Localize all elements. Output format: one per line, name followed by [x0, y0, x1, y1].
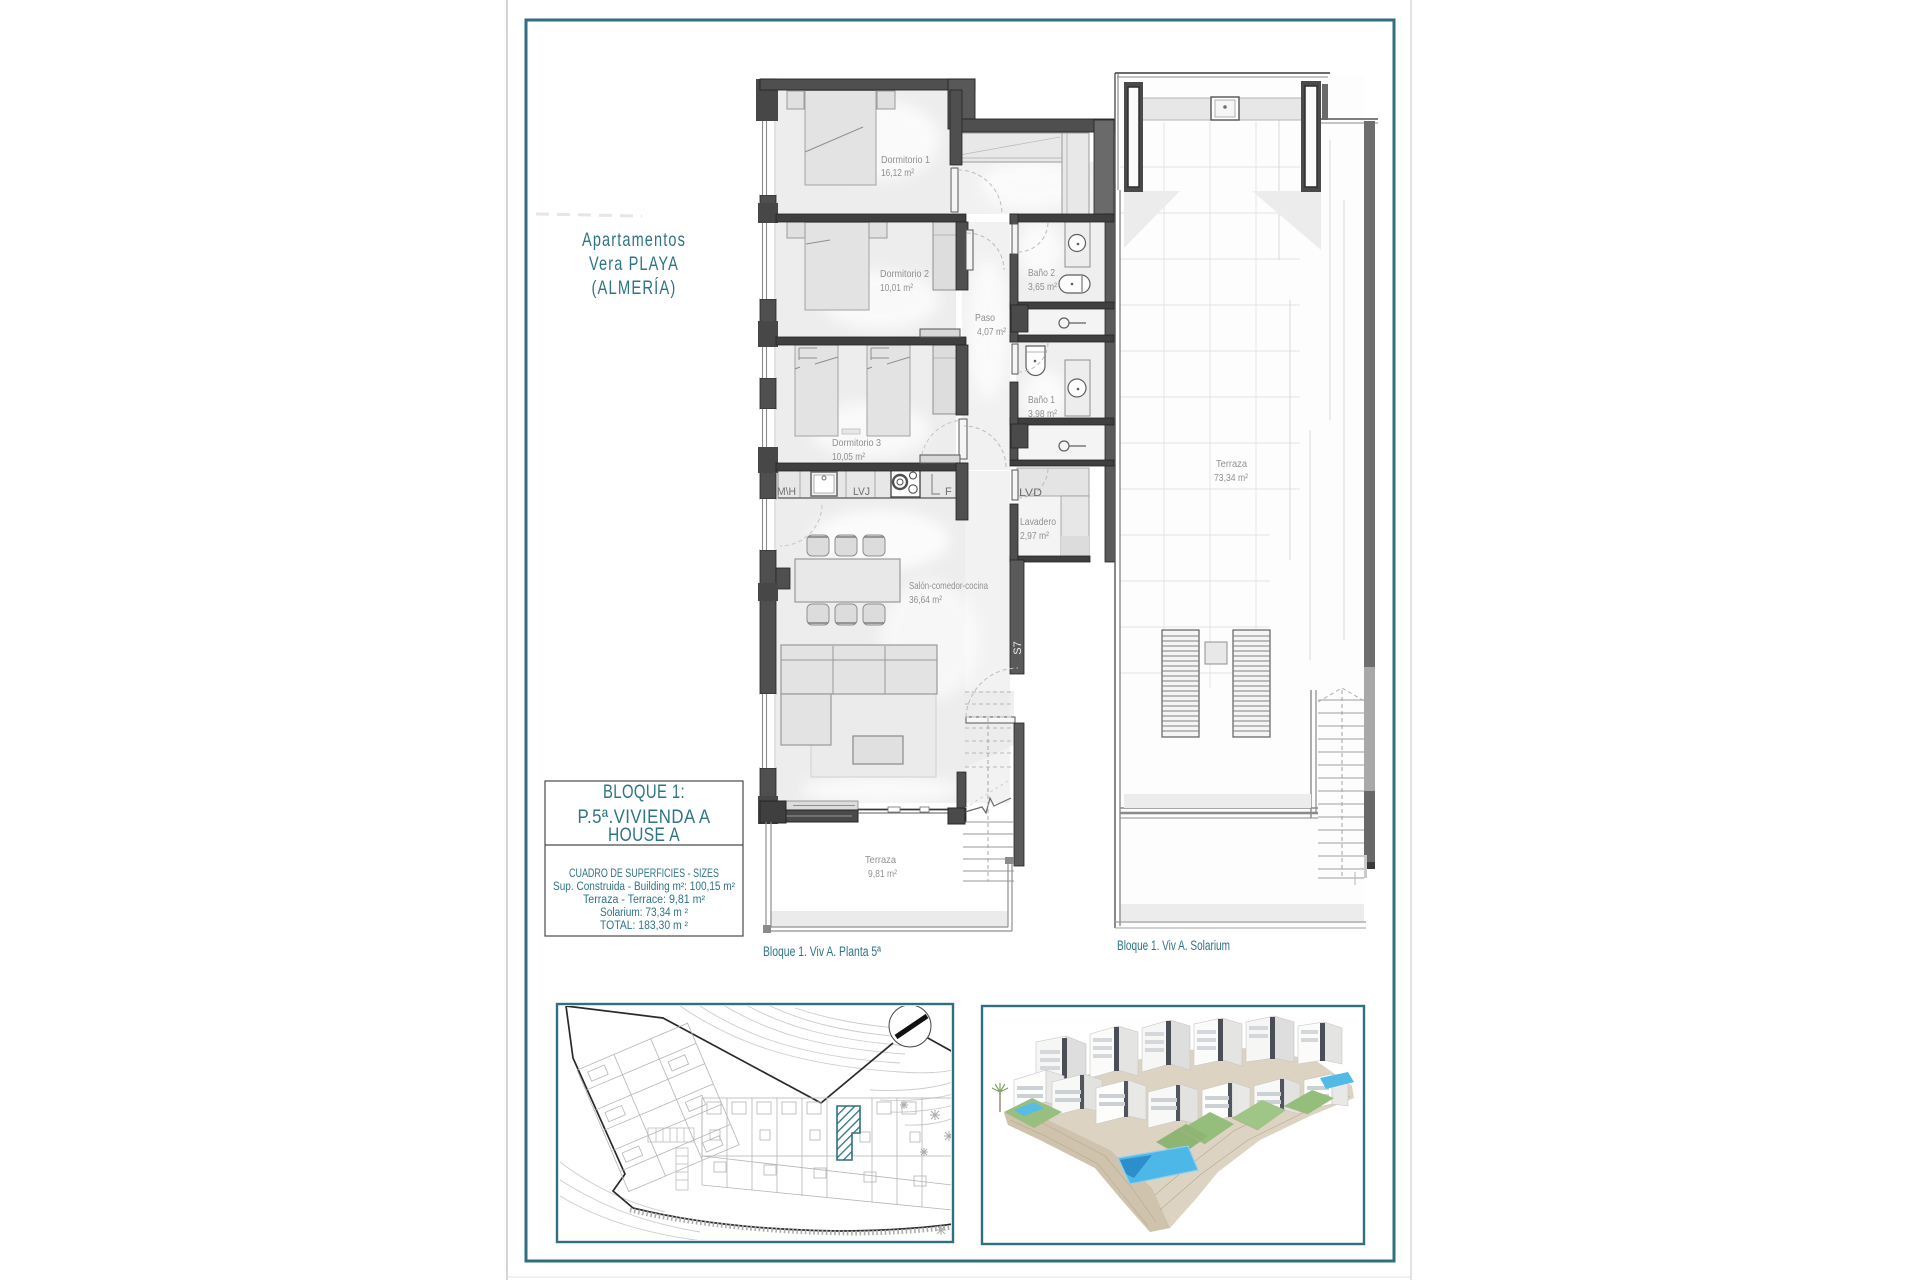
svg-text:10,01 m²: 10,01 m² — [880, 282, 913, 294]
svg-text:Solarium: 73,34 m ²: Solarium: 73,34 m ² — [600, 907, 688, 919]
svg-text:10,05 m²: 10,05 m² — [832, 451, 865, 463]
svg-text:CUADRO DE SUPERFICIES - SIZES: CUADRO DE SUPERFICIES - SIZES — [569, 868, 719, 880]
svg-text:Baño 2: Baño 2 — [1028, 267, 1055, 279]
svg-text:Dormitorio 2: Dormitorio 2 — [880, 268, 929, 280]
svg-text:2,97 m²: 2,97 m² — [1020, 530, 1049, 542]
svg-text:Terraza: Terraza — [865, 854, 896, 866]
svg-text:Vera PLAYA: Vera PLAYA — [589, 253, 679, 275]
svg-text:Baño 1: Baño 1 — [1028, 394, 1055, 406]
svg-text:F: F — [945, 486, 952, 498]
svg-text:Apartamentos: Apartamentos — [582, 229, 686, 251]
svg-text:Paso: Paso — [975, 312, 995, 324]
svg-text:16,12 m²: 16,12 m² — [881, 167, 914, 179]
svg-text:9,81 m²: 9,81 m² — [868, 868, 897, 880]
svg-text:Sup. Construida - Building m²: Sup. Construida - Building m²: 100,15 m² — [553, 881, 735, 893]
svg-text:Dormitorio 1: Dormitorio 1 — [881, 154, 930, 166]
svg-text:HOUSE A: HOUSE A — [608, 825, 680, 846]
svg-text:Terraza: Terraza — [1216, 458, 1247, 470]
svg-text:Salón-comedor-cocina: Salón-comedor-cocina — [909, 580, 988, 592]
svg-text:LVD: LVD — [1019, 487, 1042, 499]
svg-text:Dormitorio 3: Dormitorio 3 — [832, 437, 881, 449]
svg-text:3,98 m²: 3,98 m² — [1028, 408, 1057, 420]
svg-text:TOTAL: 183,30 m ²: TOTAL: 183,30 m ² — [600, 920, 688, 932]
svg-text:4,07 m²: 4,07 m² — [977, 326, 1006, 338]
svg-text:M\H: M\H — [777, 486, 796, 498]
svg-text:Lavadero: Lavadero — [1020, 516, 1056, 528]
svg-text:S7: S7 — [1012, 641, 1024, 654]
svg-text:3,65 m²: 3,65 m² — [1028, 281, 1057, 293]
svg-text:36,64 m²: 36,64 m² — [909, 594, 942, 606]
svg-text:Bloque 1. Viv A. Solarium: Bloque 1. Viv A. Solarium — [1117, 938, 1230, 953]
svg-text:(ALMERÍA): (ALMERÍA) — [592, 276, 677, 299]
svg-text:Bloque 1. Viv A. Planta 5ª: Bloque 1. Viv A. Planta 5ª — [763, 944, 882, 959]
svg-text:LVJ: LVJ — [853, 486, 870, 498]
svg-text:BLOQUE 1:: BLOQUE 1: — [603, 782, 685, 803]
svg-text:73,34 m²: 73,34 m² — [1214, 472, 1248, 484]
svg-text:Terraza - Terrace: 9,81 m²: Terraza - Terrace: 9,81 m² — [583, 894, 705, 906]
